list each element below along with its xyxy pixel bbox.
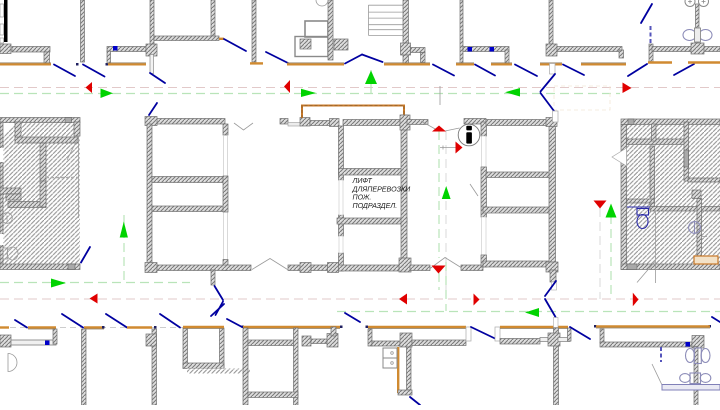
svg-text:ЛИФТ: ЛИФТ: [352, 177, 373, 185]
svg-text:ПОДРАЗДЕЛ.: ПОДРАЗДЕЛ.: [353, 202, 398, 210]
svg-text:ДЛЯПЕРЕВОЗКИ: ДЛЯПЕРЕВОЗКИ: [352, 185, 412, 193]
svg-text:ПОЖ.: ПОЖ.: [353, 194, 372, 202]
